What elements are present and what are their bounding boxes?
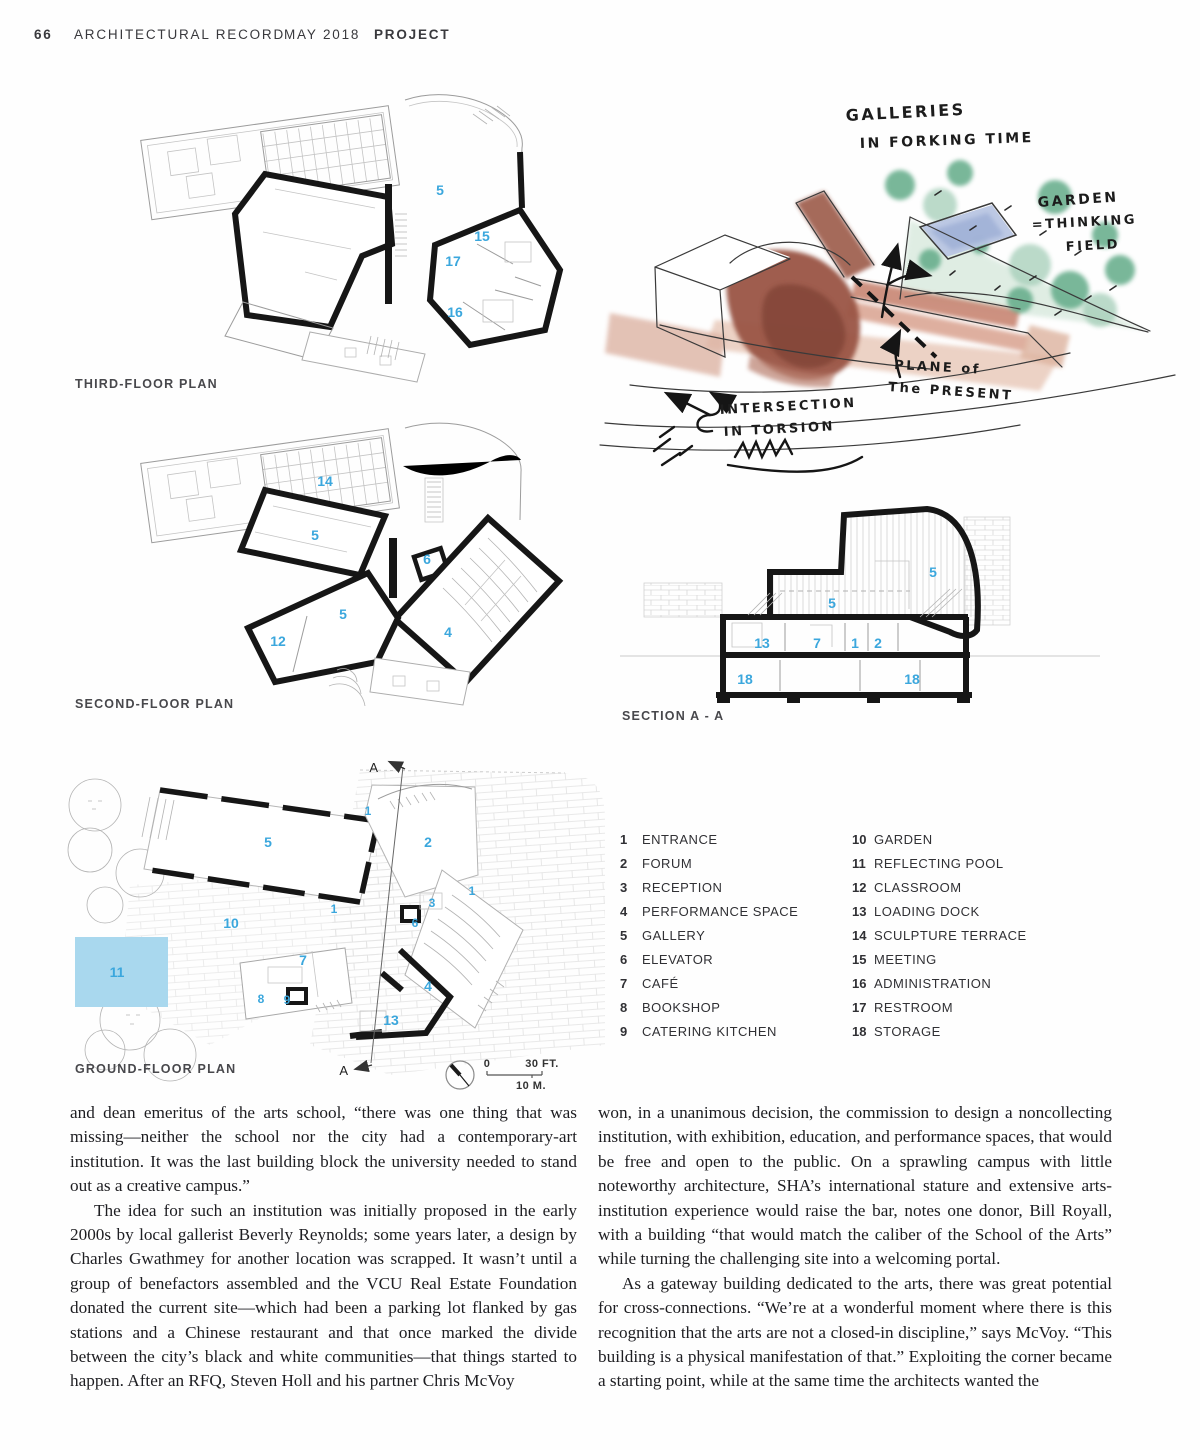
section-label: SECTION A - A (622, 709, 724, 723)
sketch-annotation: IN TORSION (723, 419, 835, 440)
legend-label: LOADING DOCK (874, 904, 980, 919)
third-floor-plan-label: THIRD-FLOOR PLAN (75, 377, 218, 391)
legend-label: CAFÉ (642, 976, 679, 991)
legend-item: 18STORAGE (852, 1020, 1027, 1044)
plan-key-number: 13 (754, 635, 770, 651)
legend-number: 9 (620, 1024, 642, 1039)
legend-label: FORUM (642, 856, 692, 871)
legend-number: 16 (852, 976, 874, 991)
legend-number: 18 (852, 1024, 874, 1039)
legend-label: CLASSROOM (874, 880, 962, 895)
plan-key-number: 7 (299, 952, 307, 968)
legend-number: 10 (852, 832, 874, 847)
legend-label: MEETING (874, 952, 937, 967)
plan-key-number: 16 (447, 304, 463, 320)
legend-item: 10GARDEN (852, 827, 1027, 851)
plan-key-number: 9 (284, 993, 291, 1007)
article-column-left: and dean emeritus of the arts school, “t… (70, 1101, 577, 1394)
magazine-page: { "header": { "page_number": "66", "publ… (0, 0, 1200, 1450)
plan-key-number: 7 (813, 635, 821, 651)
sketch-annotation: IN FORKING TIME (860, 130, 1034, 152)
article-paragraph: and dean emeritus of the arts school, “t… (70, 1101, 577, 1199)
ground-floor-plan-drawing: A A 0 30 FT. 10 M. 15211036117894131 (60, 745, 600, 1097)
article-paragraph: As a gateway building dedicated to the a… (598, 1272, 1112, 1394)
plan-key-number: 1 (365, 804, 372, 818)
plan-key-number: 12 (270, 633, 286, 649)
plan-key-number: 17 (445, 253, 461, 269)
section-drawing: 55137121818 (620, 505, 1100, 710)
plan-key-number: 5 (436, 182, 444, 198)
concept-sketch: GALLERIESIN FORKING TIMEGARDEN=THINKINGF… (600, 85, 1185, 485)
legend-label: STORAGE (874, 1024, 941, 1039)
core-wall (389, 538, 397, 598)
plan-key-number: 2 (424, 834, 432, 850)
plan-key-number: 2 (874, 635, 882, 651)
legend-number: 1 (620, 832, 642, 847)
plan-key-number: 18 (737, 671, 753, 687)
legend-item: 16ADMINISTRATION (852, 972, 1027, 996)
legend-label: ENTRANCE (642, 832, 718, 847)
legend-label: CATERING KITCHEN (642, 1024, 777, 1039)
legend-number: 7 (620, 976, 642, 991)
legend-number: 12 (852, 880, 874, 895)
sketch-annotation: PLANE of (894, 358, 981, 378)
plan-key-number: 6 (423, 551, 431, 567)
meeting-admin-walls (430, 210, 560, 345)
legend-label: ADMINISTRATION (874, 976, 991, 991)
legend-item: 17RESTROOM (852, 996, 1027, 1020)
third-floor-plan-drawing: 5151716 (75, 92, 570, 384)
performance-hall-walls (395, 518, 559, 682)
legend-item: 2FORUM (620, 851, 798, 875)
legend-item: 11REFLECTING POOL (852, 851, 1027, 875)
plan-key-number: 8 (258, 992, 265, 1006)
legend-column-1: 1ENTRANCE2FORUM3RECEPTION4PERFORMANCE SP… (620, 827, 798, 1044)
sketch-annotation: INTERSECTION (719, 396, 857, 418)
section-tag: PROJECT (374, 27, 450, 42)
legend-label: GARDEN (874, 832, 933, 847)
plan-key-number: 1 (851, 635, 859, 651)
plan-key-number: 5 (339, 606, 347, 622)
kitchen-box (288, 989, 306, 1003)
legend-item: 9CATERING KITCHEN (620, 1020, 798, 1044)
scale-zero: 0 (484, 1058, 491, 1070)
legend-item: 15MEETING (852, 947, 1027, 971)
legend-number: 17 (852, 1000, 874, 1015)
section-marker-top: A (369, 760, 378, 775)
plan-key-number: 1 (469, 884, 476, 898)
legend-number: 8 (620, 1000, 642, 1015)
plan-key-number: 13 (383, 1012, 399, 1028)
legend-item: 14SCULPTURE TERRACE (852, 923, 1027, 947)
legend-number: 2 (620, 856, 642, 871)
legend-number: 4 (620, 904, 642, 919)
legend-item: 6ELEVATOR (620, 947, 798, 971)
legend-label: BOOKSHOP (642, 1000, 720, 1015)
article-paragraph: The idea for such an institution was ini… (70, 1199, 577, 1394)
scale-meters: 10 M. (516, 1080, 546, 1092)
publication-title: ARCHITECTURAL RECORD (74, 27, 285, 42)
article-column-right: won, in a unanimous decision, the commis… (598, 1101, 1112, 1394)
legend-label: SCULPTURE TERRACE (874, 928, 1027, 943)
sketch-annotation: FIELD (1065, 237, 1120, 255)
second-floor-plan-label: SECOND-FLOOR PLAN (75, 697, 234, 711)
plan-key-number: 4 (444, 624, 452, 640)
second-floor-plan-drawing: 14565124 (75, 420, 570, 712)
legend-item: 13LOADING DOCK (852, 899, 1027, 923)
plan-key-number: 15 (474, 228, 490, 244)
legend-label: REFLECTING POOL (874, 856, 1004, 871)
plan-key-number: 10 (223, 915, 239, 931)
legend-item: 8BOOKSHOP (620, 996, 798, 1020)
article-paragraph: won, in a unanimous decision, the commis… (598, 1101, 1112, 1272)
plan-key-number: 1 (331, 902, 338, 916)
legend-label: RECEPTION (642, 880, 722, 895)
section-marker-bottom: A (339, 1063, 348, 1078)
legend-label: PERFORMANCE SPACE (642, 904, 798, 919)
legend-number: 13 (852, 904, 874, 919)
plan-key-number: 4 (424, 978, 432, 994)
sketch-annotation: =THINKING (1031, 213, 1137, 233)
legend-item: 5GALLERY (620, 923, 798, 947)
plan-key-number: 3 (429, 896, 436, 910)
scale-bar: 0 30 FT. 10 M. (484, 1058, 559, 1092)
page-number: 66 (34, 27, 53, 42)
legend-number: 14 (852, 928, 874, 943)
legend-item: 12CLASSROOM (852, 875, 1027, 899)
plan-key-number: 11 (110, 964, 125, 980)
core-wall (385, 184, 392, 304)
legend-number: 3 (620, 880, 642, 895)
legend-item: 7CAFÉ (620, 972, 798, 996)
plan-key-number: 5 (311, 527, 319, 543)
legend-label: RESTROOM (874, 1000, 953, 1015)
legend-item: 4PERFORMANCE SPACE (620, 899, 798, 923)
issue-date: MAY 2018 (284, 27, 360, 42)
scale-feet: 30 FT. (525, 1058, 559, 1070)
gallery-wing-walls (235, 174, 392, 327)
plan-key-number: 5 (264, 834, 272, 850)
plan-key-number: 5 (828, 595, 836, 611)
plan-key-number: 14 (317, 473, 333, 489)
legend-number: 6 (620, 952, 642, 967)
plan-key-number: 18 (904, 671, 920, 687)
legend-number: 15 (852, 952, 874, 967)
legend-number: 11 (852, 856, 874, 871)
legend-label: ELEVATOR (642, 952, 713, 967)
legend-column-2: 10GARDEN11REFLECTING POOL12CLASSROOM13LO… (852, 827, 1027, 1044)
legend-number: 5 (620, 928, 642, 943)
plan-key-number: 5 (929, 564, 937, 580)
plan-key-number: 6 (412, 916, 419, 930)
sketch-annotation: GALLERIES (845, 100, 966, 125)
legend-label: GALLERY (642, 928, 705, 943)
legend-item: 1ENTRANCE (620, 827, 798, 851)
ground-floor-plan-label: GROUND-FLOOR PLAN (75, 1062, 236, 1076)
legend-item: 3RECEPTION (620, 875, 798, 899)
